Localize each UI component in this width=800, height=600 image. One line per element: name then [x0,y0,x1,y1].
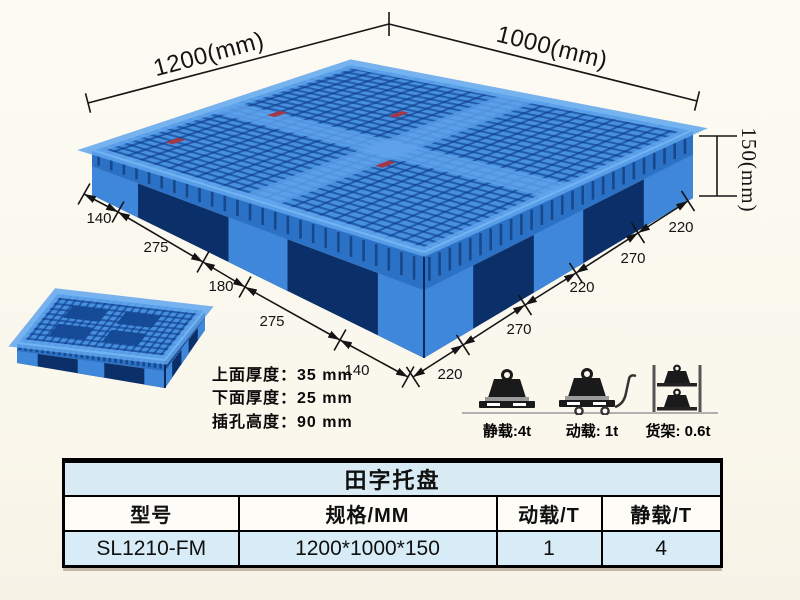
right-chain-label-5: 220 [437,366,462,383]
static-load-icon [472,366,542,413]
model-value: SL1210-FM [64,531,239,567]
left-chain-label-1: 140 [86,210,111,227]
fork-hole-height-note: 插孔高度：90 mm [212,408,353,432]
pallet-spec-sheet: 1200(mm) 1000(mm) 150(mm) 140 275 180 27… [0,0,800,600]
left-chain-label-4: 275 [259,313,284,330]
left-chain-label-2: 275 [143,239,168,256]
spec-value: 1200*1000*150 [239,531,497,567]
right-chain-label-4: 270 [506,321,531,338]
spec-table-data-row: SL1210-FM 1200*1000*150 1 4 [64,531,722,567]
right-chain-label-3: 220 [569,279,594,296]
rack-load-icon [650,362,704,414]
static-load-value: 4 [602,531,722,567]
rack-load-label: 货架: 0.6t [632,420,724,441]
col-header-dynamic-load: 动载/T [497,496,602,531]
spec-table-header-row: 型号 规格/MM 动载/T 静载/T [64,496,722,531]
bottom-thickness-note: 下面厚度：25 mm [212,384,353,408]
left-edge-dimension-chain [78,184,414,388]
col-header-spec: 规格/MM [239,496,497,531]
dynamic-load-label: 动载: 1t [546,420,638,441]
right-chain-label-2: 270 [620,250,645,267]
top-thickness-note: 上面厚度：35 mm [212,361,353,385]
overall-dimension-lines [86,12,738,196]
spec-table: 田字托盘 型号 规格/MM 动载/T 静载/T SL1210-FM 1200*1… [62,458,723,568]
static-load-label: 静载:4t [468,420,546,441]
spec-table-title: 田字托盘 [64,461,722,497]
right-chain-label-1: 220 [668,219,693,236]
dynamic-load-icon [549,362,645,415]
spec-table-title-row: 田字托盘 [64,461,722,497]
col-header-model: 型号 [64,496,239,531]
dim-label-width: 1200(mm) [151,27,267,82]
left-chain-label-3: 180 [208,278,233,295]
col-header-static-load: 静载/T [602,496,722,531]
dynamic-load-value: 1 [497,531,602,567]
dim-label-depth: 1000(mm) [494,21,611,75]
right-edge-dimension-chain [407,191,695,387]
dim-label-height: 150(mm) [737,127,761,212]
